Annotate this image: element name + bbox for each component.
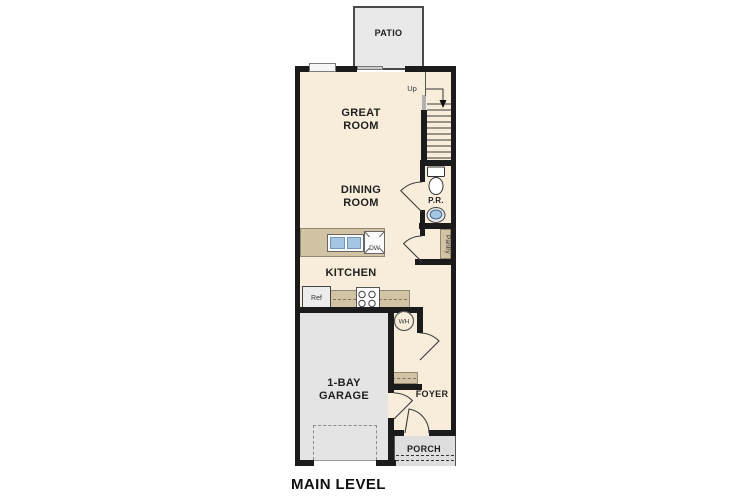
stairs-up-label: Up [402,82,422,95]
refrigerator-label: Ref [311,295,322,302]
stair-edge-line [425,72,426,96]
wall-garage-top [295,307,422,313]
plan-title: MAIN LEVEL [291,476,386,493]
pantry-label: Pantry [441,230,451,258]
wall-pr-left-lower [420,210,425,224]
garage-door-threshold [314,460,376,461]
wall-closet-right [417,307,423,333]
dishwasher-label: DW [369,245,380,252]
foyer-label: FOYER [403,388,461,401]
wall-segment [405,66,456,72]
wall-garage-right-upper [388,307,394,393]
garage-door-outline [313,425,377,460]
floor-plan: Ref [0,0,750,500]
wall-right [451,66,456,436]
kitchen-label: KITCHEN [311,267,391,280]
wall-porch-top-left [394,430,404,436]
wall-pr-left-upper [420,166,425,182]
wall-stairs-left [421,110,427,166]
wall-segment [336,66,357,72]
wall-pantry-bottom [415,259,452,265]
wall-garage-bottom-right [376,460,396,466]
shelf-centerline [392,378,416,379]
range [356,287,380,309]
patio-slider-door [357,66,383,70]
dining-room-label: DINING ROOM [321,184,401,210]
great-room-label: GREAT ROOM [321,107,401,133]
closet-shelf [390,372,418,384]
stair-rail [422,95,426,110]
dishwasher-label-chip: DW [367,237,382,248]
powder-room-label: P.R. [421,194,451,207]
wall-garage-bottom-left [295,460,314,466]
porch-label: PORCH [395,443,453,456]
refrigerator: Ref [302,286,331,308]
window [309,63,336,72]
sink-basin-left [330,237,345,249]
sink-basin-right [347,237,361,249]
wall-pantry-left-stub [420,229,425,236]
wall-garage-right-lower [388,418,394,460]
wall-left [295,66,300,466]
porch-step-line-2 [396,460,454,461]
garage-label: 1-BAY GARAGE [304,377,384,403]
patio-label: PATIO [353,27,424,40]
wall-porch-top-right [429,430,456,436]
